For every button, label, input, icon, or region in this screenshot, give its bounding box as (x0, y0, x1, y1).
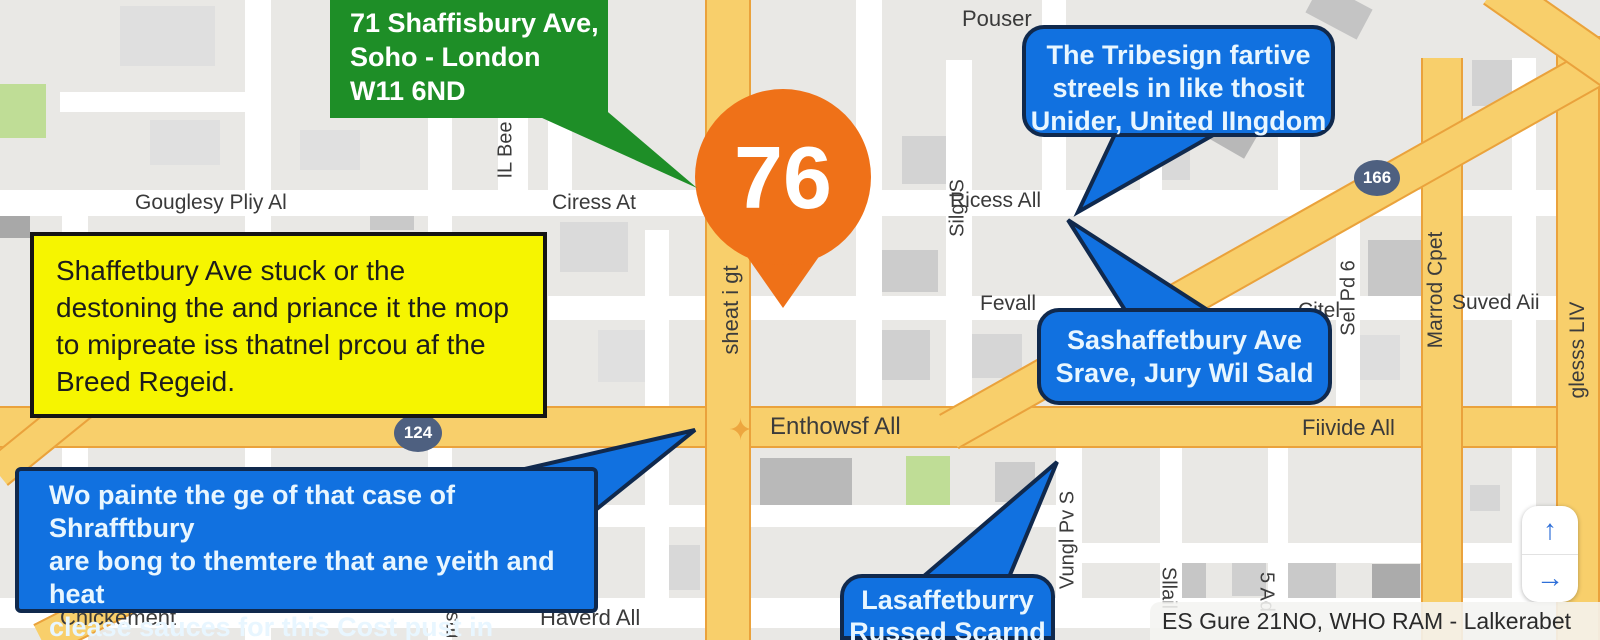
road-minor (548, 110, 572, 196)
street-label-silg: Silg IS (947, 179, 970, 237)
building (1288, 560, 1336, 600)
road-minor (560, 505, 1080, 527)
street-label-enthowsf: Enthowsf All (770, 413, 901, 441)
street-label-suved: Suved Aii (1452, 291, 1540, 315)
bubble-mid-right: Sashaffetbury Ave Srave, Jury Wil Sald (1037, 308, 1332, 405)
street-label-fevall: Fevall (980, 292, 1036, 316)
street-label-sel-pd: Sel Pd 6 (1338, 260, 1361, 336)
building (1368, 240, 1422, 298)
street-label-gouglesy: Gouglesy Pliy Al (135, 191, 287, 215)
street-label-pouser: Pouser (962, 6, 1032, 32)
pan-controls: ↑ → (1522, 506, 1578, 602)
map-canvas[interactable]: ✦ Gouglesy Pliy Al Ciress At Pouser Rice… (0, 0, 1600, 640)
street-label-marrod: Marrod Cpet (1424, 232, 1448, 349)
route-shield-124: 124 (394, 414, 442, 452)
address-card: 71 Shaffisbury Ave, Soho - London W11 6N… (330, 0, 608, 118)
street-label-vungl: Vungl Pv S (1057, 491, 1080, 589)
building (120, 6, 215, 66)
bubble-top-right: The Tribesign fartive streels in like th… (1022, 25, 1335, 137)
yellow-note: Shaffetbury Ave stuck or the destoning t… (30, 232, 547, 418)
road-minor (60, 92, 260, 112)
building (150, 120, 220, 165)
street-label-gless: glesss LIV (1566, 302, 1590, 399)
building (995, 462, 1035, 502)
map-attribution: ES Gure 21NO, WHO RAM - Lalkerabet (1150, 602, 1600, 640)
building (876, 250, 938, 292)
building (1470, 485, 1500, 511)
street-label-ciress: Ciress At (552, 191, 636, 215)
park-area (0, 84, 46, 138)
bubble-bottom-left: Wo painte the ge of that case of Shrafft… (15, 467, 598, 613)
pan-right-button[interactable]: → (1522, 555, 1578, 603)
route-shield-166: 166 (1354, 160, 1400, 196)
street-label-il-bee: IL Bee (495, 121, 518, 178)
map-pin-label: 76 (695, 134, 871, 222)
arrow-right-icon: → (1536, 562, 1564, 593)
park-area (906, 456, 950, 508)
bubble-bottom-center: Lasaffetburry Russed Scarnd (840, 574, 1055, 640)
pan-up-button[interactable]: ↑ (1522, 506, 1578, 554)
intersection-star-icon: ✦ (728, 416, 753, 446)
street-label-fiivide: Fiivide All (1302, 415, 1395, 441)
arrow-up-icon: ↑ (1543, 514, 1557, 545)
building (300, 130, 360, 170)
building (560, 222, 628, 272)
